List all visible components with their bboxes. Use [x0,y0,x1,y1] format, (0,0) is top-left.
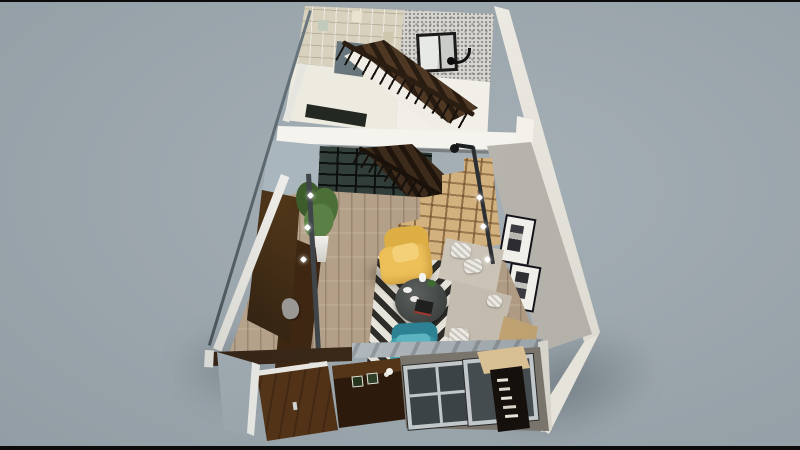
sofa-pillow [463,258,482,274]
window-mullion [438,36,442,69]
art-sketch [507,224,524,252]
mini-planter [351,375,363,387]
tile-accent [352,11,363,23]
sofa-pillow [450,242,472,260]
letterbox-bottom [0,446,800,450]
letterbox-top [0,0,800,2]
render-viewport[interactable] [0,0,800,450]
window-mullion [435,367,443,423]
mini-planter [366,372,378,384]
table-plantlet [427,280,436,287]
teacup [403,287,412,293]
table-vase [419,273,426,282]
tile-accent [318,20,329,32]
arc-floor-lamp-head [450,144,459,153]
beam-end-cap [204,350,214,367]
white-flowers [386,368,393,375]
wall-lamp-head [447,57,455,65]
